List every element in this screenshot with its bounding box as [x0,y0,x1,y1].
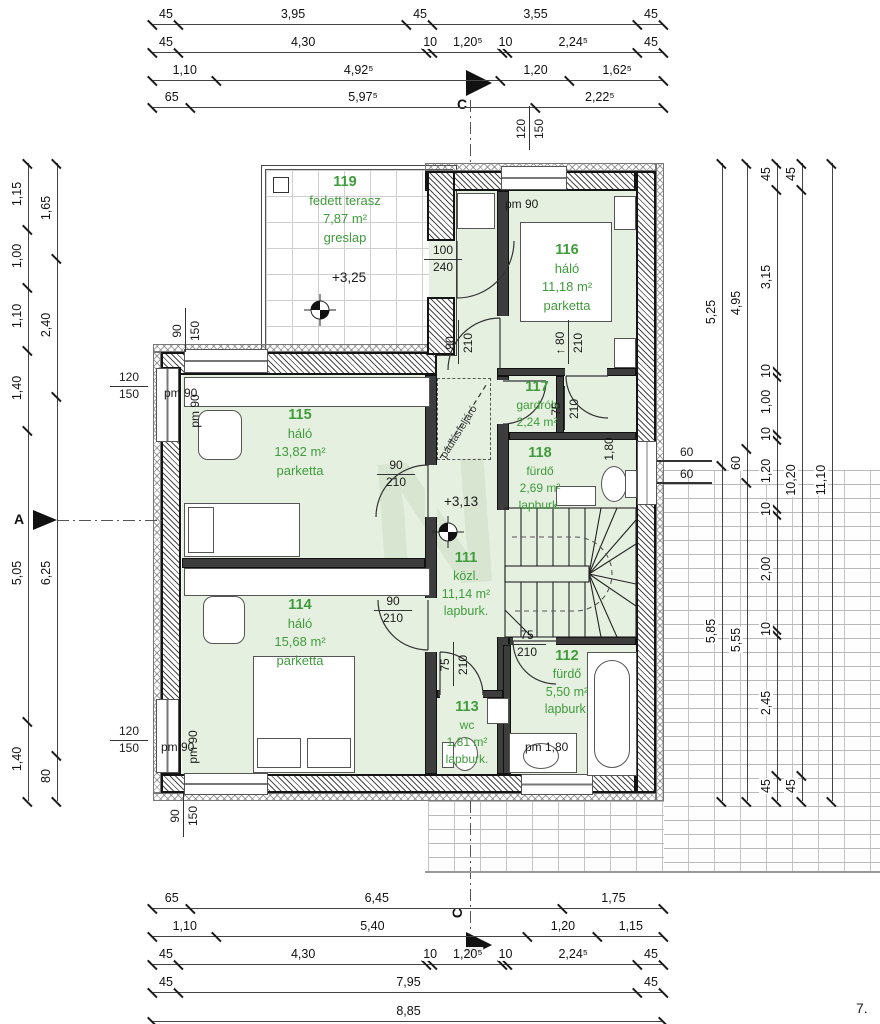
door-gap-116 [497,316,509,368]
room-number: 118 [500,443,580,463]
dim-chain-b2 [153,936,664,937]
dim-label: 45 [784,736,798,836]
dim-line-60a [657,460,712,462]
opening-dimension-label: 75210 [547,386,582,432]
room-label-115: 115 háló 13,82 m² parketta [250,405,350,480]
opening-dimension-label: 75210 [436,642,471,688]
nightstand-icon [614,338,636,368]
opening-dimension-label: pm 90 [186,388,203,434]
dim-chain-b5 [153,1021,664,1022]
room-number: 111 [434,548,498,568]
terrace-edge-line [425,871,880,873]
room-number: 113 [436,697,498,717]
room-floor: lapburk. [434,603,498,621]
room-label-114: 114 háló 15,68 m² parketta [250,595,350,670]
dim-label: 2,40 [39,275,53,375]
dim-label: 8,85 [395,1004,421,1018]
dim-label: 4,92⁵ [343,63,375,77]
dim-label: 3,95 [280,7,306,21]
dim-label: 45 [643,947,659,961]
room-floor: greslap [290,229,400,247]
pillow-icon [257,738,301,768]
opening-dimension-label: 90150 [168,308,203,354]
room-name: háló [250,425,350,443]
dim-chain-l1 [28,163,29,801]
dim-label: 1,10 [172,63,198,77]
dim-label: 1,75 [600,891,626,905]
dim-label: 1,20 [550,919,576,933]
room-area: 15,68 m² [250,633,350,651]
room-floor: parketta [250,652,350,670]
opening-dimension-label: pm 1,80 [525,740,568,754]
opening-dimension-label: 90150 [166,793,201,839]
dim-label: 2,24⁵ [557,35,589,49]
dim-label: 3,15 [759,227,773,327]
room-floor: parketta [517,297,617,315]
toilet-tank-icon [625,470,637,498]
dim-label: 1,20⁵ [452,947,484,961]
room-floor: lapburk. [436,751,498,768]
dim-label: 11,10 [814,430,828,530]
dim-label: 4,30 [290,947,316,961]
dim-label: 1,15 [618,919,644,933]
opening-dimension-label: 1,80 [600,426,617,472]
wardrobe-icon-115 [184,377,430,407]
dim-label: 60 [729,413,743,513]
floor-plan: N [0,0,880,1024]
level-label: +3,25 [332,270,366,285]
dim-label: 5,25 [704,262,718,362]
dim-label: 2,24⁵ [557,947,589,961]
section-line-c-bottom [470,801,471,929]
dim-label: 45 [643,35,659,49]
dim-chain-r1 [722,163,723,801]
dim-label: 1,20 [522,63,548,77]
room-label-119: 119 fedett terasz 7,87 m² greslap [290,172,400,247]
nightstand-icon [614,196,636,230]
room-area: 13,82 m² [250,443,350,461]
opening-dimension-label: 120150 [110,370,148,402]
opening-dimension-label: 60 [680,467,693,481]
dim-label: 45 [158,35,174,49]
room-floor: lapburk. [500,497,580,514]
dim-label: 4,95 [729,253,743,353]
opening-dimension-label: 90210 [377,458,415,490]
dim-label: 10,20 [784,430,798,530]
section-line-c-top [470,100,471,164]
opening-dimension-label: 75210 [508,628,546,660]
room-name: wc [436,717,498,734]
room-area: 11,18 m² [517,278,617,296]
dim-label: 1,40 [10,338,24,438]
door-gap-115 [425,465,437,517]
chair-icon-115 [198,410,242,460]
dim-label: 6,25 [39,523,53,623]
opening-dimension-label: ↑ 80210 [551,320,586,366]
room-area: 5,50 m² [526,684,608,702]
dim-chain-t3 [153,80,664,81]
dim-label: 65 [164,90,180,104]
level-label: +3,13 [444,494,478,509]
dim-label: 1,62⁵ [601,63,633,77]
wardrobe-icon-114 [184,568,430,596]
window-112 [521,774,593,795]
closet-icon [457,193,495,229]
dim-label: 5,97⁵ [347,90,379,104]
dim-label: 10 [498,35,514,49]
opening-dimension-label: 120150 [512,106,547,152]
room-name: fürdő [500,463,580,480]
chair-icon-114 [203,596,245,644]
attic-stairs-label: pádlásfeljáró [438,452,498,466]
dim-label: 5,40 [359,919,385,933]
dim-label: 5,85 [704,581,718,681]
room-label-118: 118 fürdő 2,69 m² lapburk. [500,443,580,514]
dim-line-60b [657,482,712,484]
dim-chain-t2 [153,52,664,53]
dim-chain-r3 [777,163,778,801]
dim-label: 1,20⁵ [452,35,484,49]
room-name: közl. [434,568,498,586]
dim-label: 45 [643,975,659,989]
dim-label: 45 [643,7,659,21]
wall-115-114 [182,558,425,568]
room-area: 2,69 m² [500,480,580,497]
sheet-note: 7. [856,1000,868,1016]
room-name: fürdő [526,666,608,684]
room-number: 114 [250,595,350,615]
window-118 [637,441,657,505]
dim-chain-r4 [802,163,803,801]
dim-label: 10 [498,947,514,961]
room-label-116: 116 háló 11,18 m² parketta [517,240,617,315]
dim-label: 1,40 [10,709,24,809]
dim-chain-t4 [153,107,664,108]
room-name: fedett terasz [290,192,400,210]
section-label-c-top: C [457,96,467,112]
room-floor: parketta [250,462,350,480]
room-area: 11,14 m² [434,586,498,604]
opening-dimension-label: 90210 [441,320,476,366]
dim-label: 5,55 [729,590,743,690]
opening-dimension-label: 100240 [424,243,462,275]
dim-label: 10 [422,35,438,49]
window-114-corner-v [156,699,179,773]
axis-line-a [57,520,162,521]
drain-icon [273,177,289,193]
opening-dimension-label: pm 90 [505,197,538,211]
window-115-corner-v [156,368,179,442]
dim-chain-b3 [153,964,664,965]
dim-label: 45 [412,7,428,21]
opening-dimension-label: 60 [680,445,693,459]
dim-label: 45 [759,124,773,224]
room-area: 1,81 m² [436,734,498,751]
dim-chain-r5 [832,163,833,801]
opening-dimension-label: 90210 [374,594,412,626]
section-label-c-bottom: C [449,908,465,918]
dim-chain-b4 [153,992,664,993]
room-floor: lapburk. [526,701,608,719]
pillow-icon [188,507,214,553]
room-number: 116 [517,240,617,260]
stair-opening-gap [497,510,509,637]
dim-label: 4,30 [290,35,316,49]
wall-terrace-right-upper [427,171,455,241]
room-label-111: 111 közl. 11,14 m² lapburk. [434,548,498,621]
dim-label: 65 [164,891,180,905]
opening-dimension-label: pm 90 [184,724,201,770]
room-name: háló [250,615,350,633]
opening-dimension-label: 120150 [110,724,148,756]
room-label-113: 113 wc 1,81 m² lapburk. [436,697,498,768]
dim-label: 1,10 [172,919,198,933]
dim-chain-b1 [153,908,664,909]
window-114-corner-h [184,773,268,795]
door-gap-lobby [565,368,607,376]
pillow-icon [307,738,351,768]
dim-label: 10 [422,947,438,961]
dim-label: 45 [158,7,174,21]
room-number: 115 [250,405,350,425]
brick-terrace-bottom [428,801,664,873]
room-number: 119 [290,172,400,192]
dim-label: 1,65 [39,158,53,258]
room-name: háló [517,260,617,278]
room-area: 7,87 m² [290,210,400,228]
dim-label: 45 [759,736,773,836]
window-116-top [501,166,567,190]
dim-label: 45 [158,947,174,961]
dim-label: 3,55 [522,7,548,21]
dim-label: 45 [158,975,174,989]
dim-label: 7,95 [395,975,421,989]
dim-label: 2,22⁵ [584,90,616,104]
dim-label: 80 [39,726,53,826]
dim-label: 6,45 [364,891,390,905]
dim-label: 5,05 [10,523,24,623]
dim-label: 45 [784,124,798,224]
